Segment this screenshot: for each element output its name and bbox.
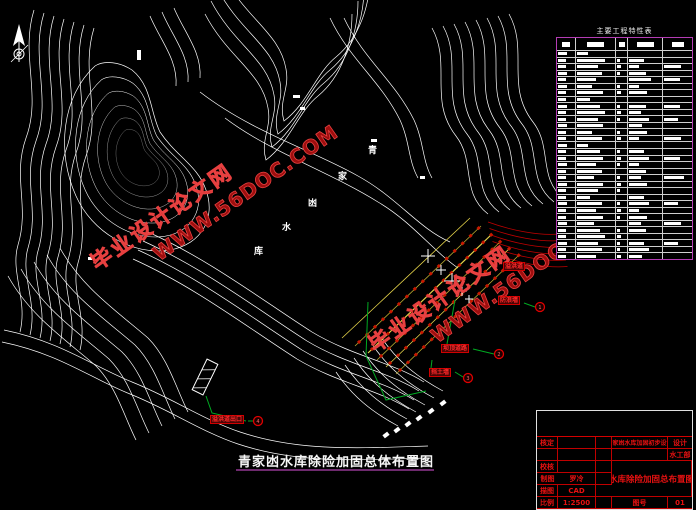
- table-cell: [557, 136, 575, 142]
- design-label: 设计: [668, 437, 692, 449]
- title-block-top-strip: [537, 411, 692, 437]
- field-label: 制图: [537, 473, 558, 485]
- field-value: CAD: [558, 485, 596, 497]
- table-cell: [662, 136, 692, 142]
- table-cell: [575, 64, 616, 70]
- table-row: [557, 141, 692, 148]
- table-cell: [627, 208, 662, 214]
- svg-text:2: 2: [497, 352, 500, 358]
- table-cell: [627, 195, 662, 201]
- table-cell: [575, 162, 616, 168]
- table-cell: [557, 227, 575, 233]
- table-cell: [575, 58, 616, 64]
- table-cell: [575, 97, 616, 103]
- table-cell: [557, 182, 575, 188]
- table-cell: [575, 240, 616, 246]
- table-row: [557, 83, 692, 90]
- table-row: [557, 115, 692, 122]
- table-row: [557, 226, 692, 233]
- table-cell: [557, 142, 575, 148]
- table-cell: [627, 77, 662, 83]
- table-row: [557, 155, 692, 162]
- table-cell: [615, 240, 627, 246]
- table-cell: [615, 71, 627, 77]
- table-row: [557, 148, 692, 155]
- table-row: [557, 246, 692, 253]
- table-cell: [615, 221, 627, 227]
- reservoir-name-char: 水: [282, 220, 291, 233]
- table-cell: [557, 38, 575, 50]
- table-cell: [575, 201, 616, 207]
- table-cell: [557, 195, 575, 201]
- table-cell: [662, 221, 692, 227]
- table-cell: [615, 90, 627, 96]
- sheet-no: 01: [668, 497, 692, 509]
- table-cell: [662, 110, 692, 116]
- table-row: [557, 63, 692, 70]
- field-label: 比例: [537, 497, 558, 509]
- table-row: [557, 102, 692, 109]
- table-cell: [615, 247, 627, 253]
- table-cell: [627, 58, 662, 64]
- table-row: [557, 135, 692, 142]
- table-row: [557, 207, 692, 214]
- spec-table-title: 主要工程特性表: [556, 26, 693, 37]
- table-row: [557, 233, 692, 240]
- table-cell: [557, 71, 575, 77]
- table-row: [557, 57, 692, 64]
- table-row: [557, 181, 692, 188]
- table-cell: [557, 156, 575, 162]
- table-cell: [627, 240, 662, 246]
- table-cell: [615, 129, 627, 135]
- table-cell: [557, 103, 575, 109]
- table-cell: [557, 214, 575, 220]
- table-cell: [557, 169, 575, 175]
- reservoir-name-char: 青: [368, 143, 377, 156]
- annotation-label: 溢洪道: [503, 262, 525, 271]
- table-cell: [557, 77, 575, 83]
- table-cell: [615, 195, 627, 201]
- table-cell: [557, 253, 575, 259]
- spec-table-grid: [556, 37, 693, 260]
- table-row: [557, 194, 692, 201]
- table-cell: [615, 182, 627, 188]
- table-cell: [627, 84, 662, 90]
- reservoir-name-char: 家: [338, 169, 347, 182]
- table-cell: [557, 201, 575, 207]
- table-cell: [662, 253, 692, 259]
- table-cell: [557, 162, 575, 168]
- table-cell: [662, 77, 692, 83]
- table-cell: [627, 110, 662, 116]
- table-cell: [557, 51, 575, 57]
- svg-text:4: 4: [256, 419, 259, 425]
- table-cell: [662, 201, 692, 207]
- table-row: [557, 76, 692, 83]
- table-cell: [557, 90, 575, 96]
- table-cell: [662, 84, 692, 90]
- table-cell: [615, 97, 627, 103]
- table-cell: [627, 169, 662, 175]
- table-cell: [627, 90, 662, 96]
- table-cell: [662, 129, 692, 135]
- table-cell: [575, 234, 616, 240]
- table-cell: [627, 142, 662, 148]
- leader-lines: [206, 300, 535, 421]
- table-cell: [662, 64, 692, 70]
- table-cell: [662, 156, 692, 162]
- table-cell: [662, 97, 692, 103]
- table-cell: [575, 129, 616, 135]
- table-cell: [575, 214, 616, 220]
- table-cell: [627, 156, 662, 162]
- table-cell: [627, 64, 662, 70]
- table-cell: [575, 188, 616, 194]
- table-cell: [575, 175, 616, 181]
- table-row: [557, 252, 692, 259]
- table-cell: [575, 221, 616, 227]
- table-cell: [662, 227, 692, 233]
- table-cell: [615, 142, 627, 148]
- table-cell: [557, 129, 575, 135]
- reservoir-name-char: 凼: [308, 196, 317, 209]
- table-cell: [557, 234, 575, 240]
- table-cell: [575, 136, 616, 142]
- table-cell: [575, 90, 616, 96]
- table-cell: [662, 51, 692, 57]
- field-value: [558, 461, 596, 473]
- table-cell: [662, 195, 692, 201]
- table-cell: [627, 116, 662, 122]
- table-cell: [575, 51, 616, 57]
- table-cell: [627, 247, 662, 253]
- table-cell: [627, 38, 662, 50]
- table-row: [557, 174, 692, 181]
- field-value: 1:2500: [558, 497, 596, 509]
- table-row: [557, 220, 692, 227]
- title-block: 核定 青家凼水库加固初步设计 设计 水工部 校核 水库除险加固总布置图 制图 罗…: [536, 410, 693, 510]
- table-cell: [575, 253, 616, 259]
- table-cell: [575, 110, 616, 116]
- table-row: [557, 122, 692, 129]
- field-value: [558, 437, 596, 449]
- table-cell: [662, 162, 692, 168]
- table-cell: [575, 71, 616, 77]
- reservoir-name-char: 库: [254, 244, 263, 257]
- drawing-title-underline: [236, 469, 434, 471]
- table-row: [557, 200, 692, 207]
- table-cell: [557, 58, 575, 64]
- table-cell: [575, 208, 616, 214]
- table-cell: [662, 240, 692, 246]
- table-cell: [575, 142, 616, 148]
- table-row: [557, 128, 692, 135]
- annotation-label: 防浪墙: [498, 296, 520, 305]
- table-cell: [662, 58, 692, 64]
- table-row: [557, 89, 692, 96]
- table-cell: [557, 116, 575, 122]
- table-cell: [557, 64, 575, 70]
- svg-text:1: 1: [538, 305, 541, 311]
- table-cell: [575, 77, 616, 83]
- table-cell: [662, 116, 692, 122]
- dept-name: 水工部: [668, 449, 692, 461]
- table-row: [557, 168, 692, 175]
- field-label: [537, 449, 558, 461]
- table-cell: [662, 149, 692, 155]
- table-cell: [662, 208, 692, 214]
- table-cell: [557, 123, 575, 129]
- table-cell: [615, 227, 627, 233]
- table-cell: [615, 201, 627, 207]
- cad-drawing: 1234 毕业设计论文网 WWW.56DOC.COM 毕业设计论文网 WWW.5…: [0, 0, 696, 510]
- table-cell: [615, 123, 627, 129]
- spec-table: 主要工程特性表: [556, 26, 693, 260]
- table-cell: [662, 214, 692, 220]
- table-cell: [615, 208, 627, 214]
- table-cell: [575, 123, 616, 129]
- table-cell: [615, 38, 627, 50]
- table-cell: [557, 110, 575, 116]
- table-cell: [615, 162, 627, 168]
- spillway-outlet-structure: [192, 359, 218, 395]
- table-cell: [662, 234, 692, 240]
- drawing-title: 青家凼水库除险加固总体布置图: [238, 451, 434, 470]
- table-cell: [662, 175, 692, 181]
- table-cell: [627, 175, 662, 181]
- table-cell: [575, 195, 616, 201]
- sheet-no-label: 图号: [612, 497, 668, 509]
- table-cell: [662, 103, 692, 109]
- table-cell: [575, 38, 616, 50]
- table-cell: [662, 123, 692, 129]
- table-cell: [575, 116, 616, 122]
- table-cell: [615, 156, 627, 162]
- table-cell: [557, 221, 575, 227]
- field-value: [558, 449, 596, 461]
- table-cell: [627, 201, 662, 207]
- table-cell: [615, 64, 627, 70]
- table-cell: [615, 58, 627, 64]
- table-cell: [615, 188, 627, 194]
- table-cell: [557, 84, 575, 90]
- field-label: 校核: [537, 461, 558, 473]
- project-name: 青家凼水库加固初步设计: [612, 437, 668, 449]
- table-row: [557, 50, 692, 57]
- table-cell: [615, 51, 627, 57]
- table-cell: [615, 136, 627, 142]
- svg-text:3: 3: [466, 376, 469, 382]
- table-cell: [615, 175, 627, 181]
- table-cell: [627, 71, 662, 77]
- field-label: 核定: [537, 437, 558, 449]
- table-cell: [627, 103, 662, 109]
- table-cell: [575, 149, 616, 155]
- table-row: [557, 109, 692, 116]
- table-cell: [557, 149, 575, 155]
- table-cell: [557, 247, 575, 253]
- table-cell: [575, 84, 616, 90]
- table-cell: [627, 221, 662, 227]
- table-cell: [557, 97, 575, 103]
- table-cell: [575, 156, 616, 162]
- table-cell: [627, 188, 662, 194]
- sheet-title: 水库除险加固总布置图: [612, 461, 692, 497]
- north-arrow-icon: [11, 24, 28, 62]
- table-cell: [615, 110, 627, 116]
- table-cell: [662, 169, 692, 175]
- table-cell: [662, 38, 692, 50]
- table-cell: [627, 234, 662, 240]
- annotation-label: 坝顶道路: [441, 344, 469, 353]
- title-block-grid: 核定 青家凼水库加固初步设计 设计 水工部 校核 水库除险加固总布置图 制图 罗…: [537, 437, 692, 509]
- table-cell: [615, 103, 627, 109]
- table-cell: [662, 247, 692, 253]
- table-cell: [575, 169, 616, 175]
- table-row: [557, 96, 692, 103]
- table-cell: [662, 71, 692, 77]
- table-cell: [575, 227, 616, 233]
- field-label: 描图: [537, 485, 558, 497]
- table-cell: [627, 149, 662, 155]
- field-value: 罗冷: [558, 473, 596, 485]
- table-cell: [557, 208, 575, 214]
- annotation-label: 挡土墙: [429, 368, 451, 377]
- table-cell: [662, 188, 692, 194]
- table-cell: [557, 188, 575, 194]
- table-cell: [627, 129, 662, 135]
- table-cell: [627, 51, 662, 57]
- table-row: [557, 187, 692, 194]
- table-cell: [615, 234, 627, 240]
- table-cell: [627, 182, 662, 188]
- table-cell: [615, 149, 627, 155]
- table-cell: [615, 84, 627, 90]
- table-cell: [627, 214, 662, 220]
- table-cell: [662, 182, 692, 188]
- table-row: [557, 161, 692, 168]
- table-cell: [557, 240, 575, 246]
- table-cell: [575, 103, 616, 109]
- table-cell: [557, 175, 575, 181]
- table-cell: [615, 77, 627, 83]
- table-cell: [615, 169, 627, 175]
- table-cell: [627, 227, 662, 233]
- table-row: [557, 239, 692, 246]
- table-cell: [662, 90, 692, 96]
- table-row: [557, 70, 692, 77]
- annotation-label: 溢洪道出口: [210, 415, 244, 424]
- table-cell: [627, 97, 662, 103]
- table-cell: [575, 247, 616, 253]
- table-cell: [575, 182, 616, 188]
- table-row: [557, 213, 692, 220]
- table-cell: [615, 253, 627, 259]
- table-cell: [662, 142, 692, 148]
- table-cell: [615, 116, 627, 122]
- table-cell: [627, 253, 662, 259]
- table-row: [557, 38, 692, 50]
- table-cell: [627, 136, 662, 142]
- table-cell: [627, 123, 662, 129]
- table-cell: [627, 162, 662, 168]
- table-cell: [615, 214, 627, 220]
